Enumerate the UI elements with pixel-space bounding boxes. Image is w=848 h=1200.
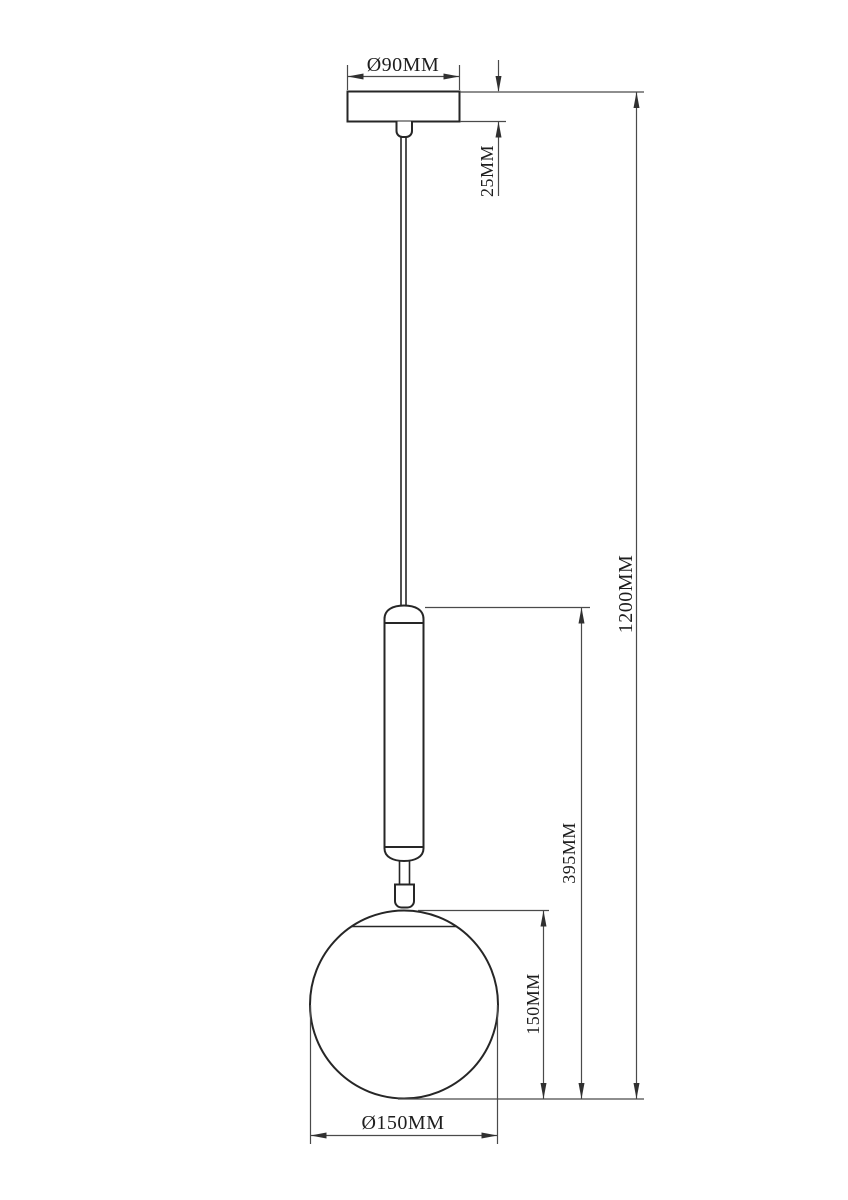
arrowhead-right: [444, 74, 460, 80]
dim-label-canopy-diameter: Ø90MM: [367, 54, 440, 76]
dim-label-globe-height: 150MM: [523, 973, 543, 1035]
cylindrical-rod: [385, 606, 424, 862]
dimension-overall-height: 1200MM: [615, 92, 640, 1099]
socket-holder: [395, 885, 414, 908]
glass-globe: [310, 911, 498, 1099]
arrowhead-down: [496, 76, 502, 92]
dim-label-overall-height: 1200MM: [615, 555, 637, 634]
arrowhead-up: [579, 608, 585, 624]
technical-drawing-canvas: Ø90MM 25MM 1200MM 395MM: [0, 0, 848, 1200]
rod-body: [385, 623, 424, 847]
dim-label-lower-section: 395MM: [559, 822, 579, 884]
arrowhead-down: [634, 1083, 640, 1099]
dim-label-canopy-height: 25MM: [477, 145, 497, 197]
stem: [400, 861, 410, 885]
ceiling-canopy: [348, 92, 460, 122]
rod-top-dome: [385, 606, 424, 624]
dim-label-globe-diameter: Ø150MM: [361, 1112, 444, 1134]
arrowhead-down: [579, 1083, 585, 1099]
cord-grip-connector: [397, 122, 413, 138]
arrowhead-up: [541, 911, 547, 927]
rod-bottom-dome: [385, 847, 424, 861]
arrowhead-up: [496, 122, 502, 138]
arrowhead-right: [482, 1133, 498, 1139]
arrowhead-down: [541, 1083, 547, 1099]
lamp-object: [310, 92, 498, 1099]
arrowhead-left: [348, 74, 364, 80]
arrowhead-up: [634, 92, 640, 108]
pendant-lamp-drawing: Ø90MM 25MM 1200MM 395MM: [0, 0, 848, 1200]
arrowhead-left: [311, 1133, 327, 1139]
dimension-canopy-height: 25MM: [460, 60, 644, 197]
suspension-cable: [401, 138, 406, 607]
dimension-canopy-diameter: Ø90MM: [348, 54, 460, 90]
